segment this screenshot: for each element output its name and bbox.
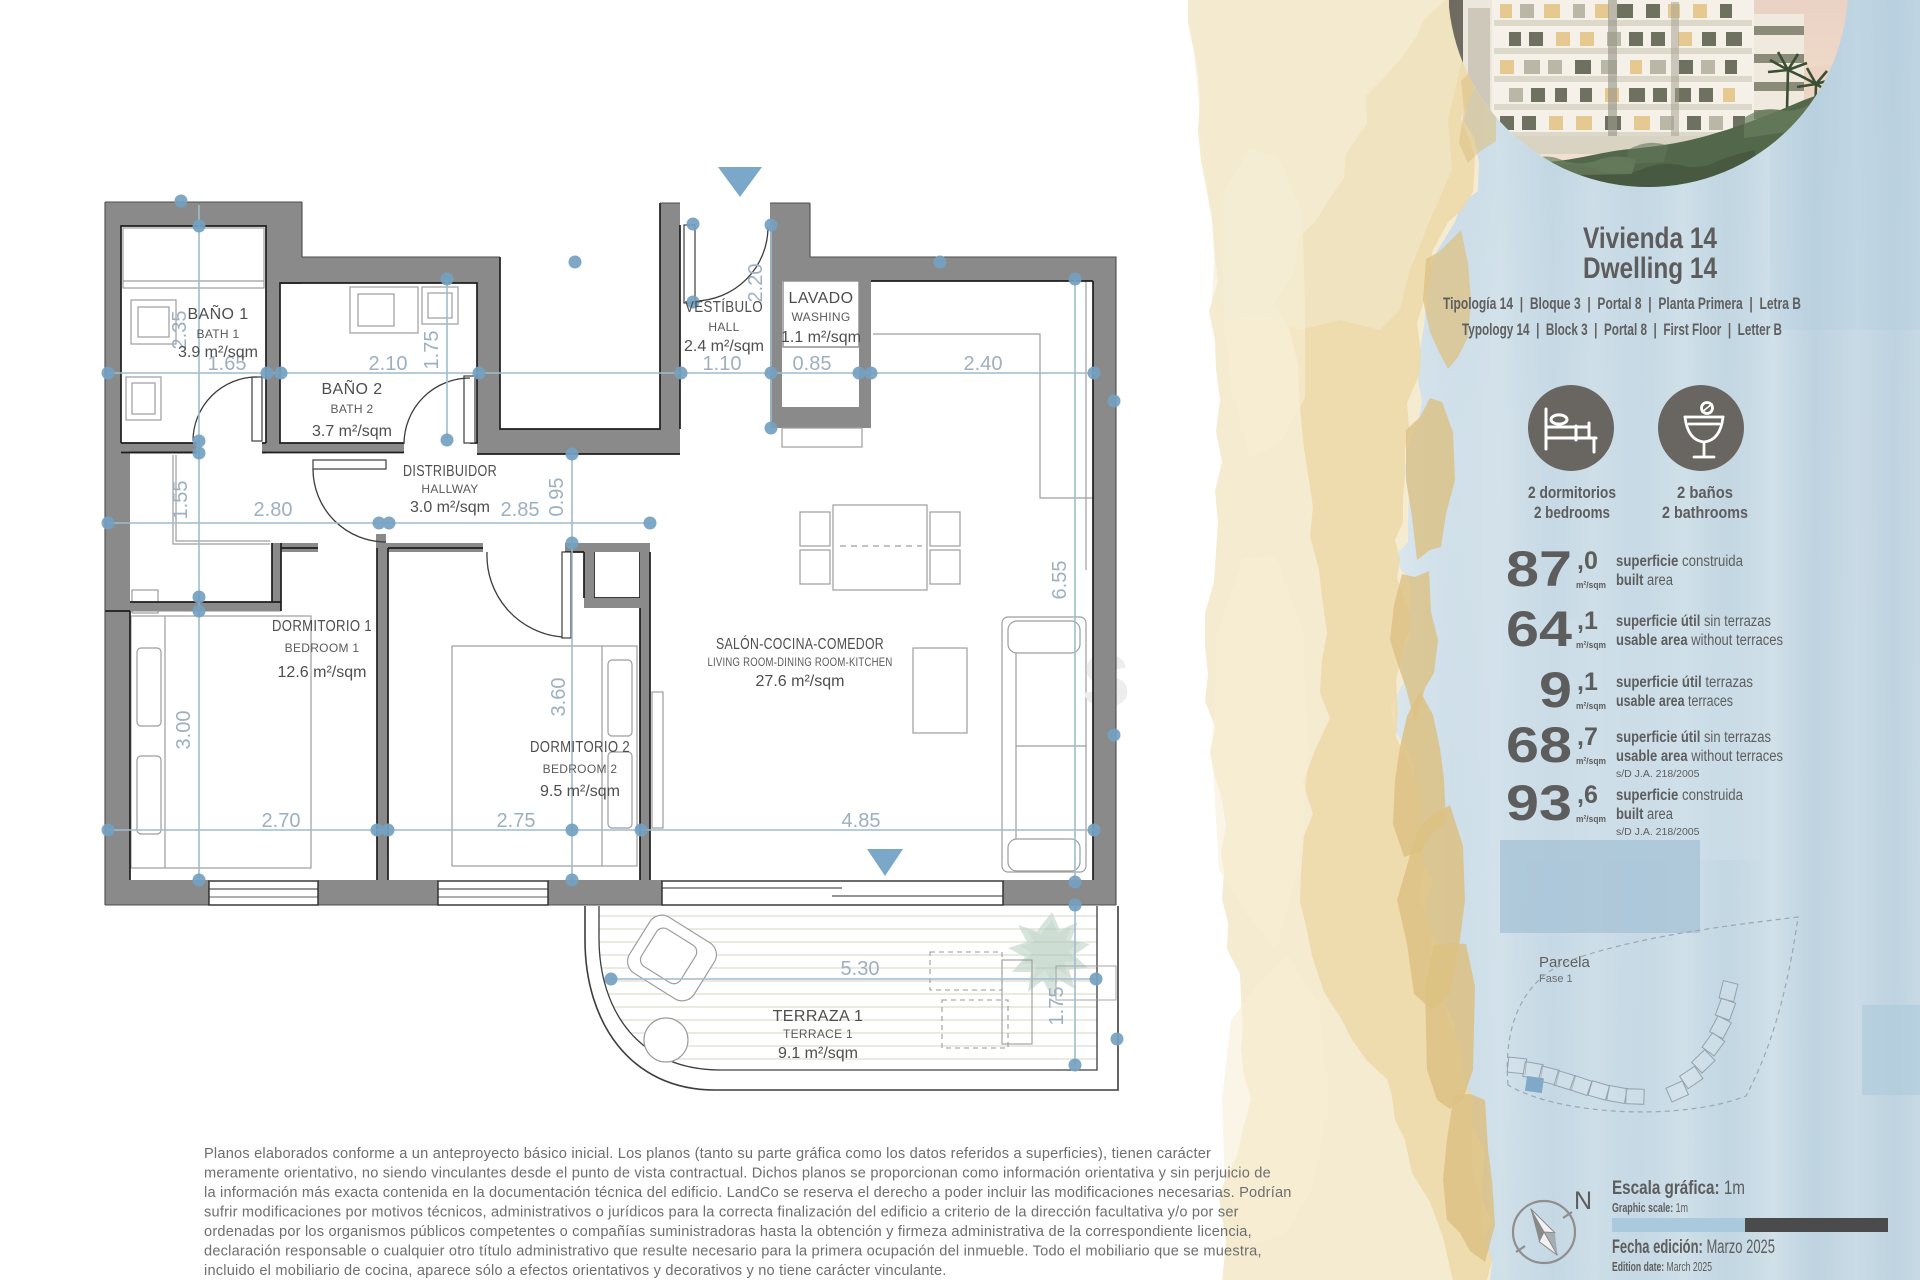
svg-text:LAVADO: LAVADO — [789, 290, 854, 307]
svg-text:27.6 m²/sqm: 27.6 m²/sqm — [756, 673, 845, 690]
svg-text:0.85: 0.85 — [793, 353, 832, 375]
svg-text:TERRACE 1: TERRACE 1 — [783, 1027, 853, 1041]
svg-text:Dwelling 14: Dwelling 14 — [1583, 252, 1717, 285]
svg-text:superficie útil terrazas: superficie útil terrazas — [1616, 674, 1753, 691]
svg-text:Planos elaborados conforme a u: Planos elaborados conforme a un anteproy… — [204, 1146, 1211, 1162]
svg-text:6.55: 6.55 — [1049, 561, 1071, 600]
svg-text:BAÑO 1: BAÑO 1 — [187, 303, 248, 323]
svg-text:BEDROOM 1: BEDROOM 1 — [285, 641, 360, 655]
svg-text:built area: built area — [1616, 806, 1673, 823]
svg-text:4.85: 4.85 — [842, 810, 881, 832]
svg-text:VESTÍBULO: VESTÍBULO — [685, 297, 763, 316]
svg-text:2 dormitorios: 2 dormitorios — [1528, 484, 1616, 502]
svg-text:superficie útil sin terrazas: superficie útil sin terrazas — [1616, 729, 1771, 746]
svg-text:BATH 2: BATH 2 — [331, 402, 374, 416]
svg-text:,1: ,1 — [1577, 668, 1598, 696]
svg-text:Vivienda 14: Vivienda 14 — [1583, 222, 1717, 255]
svg-text:BAÑO 2: BAÑO 2 — [321, 378, 382, 398]
svg-text:2.80: 2.80 — [254, 499, 293, 521]
svg-text:5.30: 5.30 — [841, 958, 880, 980]
svg-text:BEDROOM 2: BEDROOM 2 — [543, 762, 618, 776]
svg-text:2.75: 2.75 — [497, 810, 536, 832]
svg-text:2.20: 2.20 — [745, 264, 767, 303]
svg-text:1.75: 1.75 — [1046, 987, 1068, 1026]
svg-text:2.40: 2.40 — [964, 353, 1003, 375]
svg-text:superficie construida: superficie construida — [1616, 787, 1743, 804]
svg-text:m²/sqm: m²/sqm — [1576, 756, 1606, 767]
svg-text:meramente orientativo, no sien: meramente orientativo, no siendo vincula… — [204, 1166, 1271, 1182]
svg-text:,7: ,7 — [1577, 723, 1598, 751]
svg-text:9.5 m²/sqm: 9.5 m²/sqm — [540, 783, 620, 800]
svg-text:usable area without terraces: usable area without terraces — [1616, 748, 1783, 765]
svg-text:DISTRIBUIDOR: DISTRIBUIDOR — [403, 463, 497, 480]
svg-text:usable area without terraces: usable area without terraces — [1616, 632, 1783, 649]
svg-text:DORMITORIO 1: DORMITORIO 1 — [272, 618, 372, 635]
svg-text:2.70: 2.70 — [262, 810, 301, 832]
svg-text:incluido el mobiliario de coci: incluido el mobiliario de cocina, aparec… — [204, 1263, 947, 1279]
svg-text:,6: ,6 — [1577, 781, 1598, 809]
svg-text:3.9 m²/sqm: 3.9 m²/sqm — [178, 344, 258, 361]
svg-text:m²/sqm: m²/sqm — [1576, 814, 1606, 825]
svg-text:Fecha edición: Marzo 2025: Fecha edición: Marzo 2025 — [1612, 1237, 1775, 1258]
svg-text:Fase 1: Fase 1 — [1539, 973, 1573, 985]
svg-text:2.85: 2.85 — [501, 499, 540, 521]
svg-text:BATH 1: BATH 1 — [197, 327, 240, 341]
svg-text:9.1 m²/sqm: 9.1 m²/sqm — [778, 1045, 858, 1062]
svg-text:64: 64 — [1506, 601, 1572, 657]
svg-text:DORMITORIO 2: DORMITORIO 2 — [530, 739, 630, 756]
svg-text:3.0 m²/sqm: 3.0 m²/sqm — [410, 499, 490, 516]
svg-text:LIVING ROOM-DINING ROOM-KITCHE: LIVING ROOM-DINING ROOM-KITCHEN — [708, 655, 893, 669]
svg-text:Graphic scale: 1m: Graphic scale: 1m — [1612, 1200, 1688, 1215]
svg-text:declaración responsable o cual: declaración responsable o cualquier otro… — [204, 1244, 1262, 1260]
svg-text:,1: ,1 — [1577, 607, 1598, 635]
svg-text:TERRAZA 1: TERRAZA 1 — [773, 1008, 864, 1025]
svg-text:1.10: 1.10 — [703, 353, 742, 375]
svg-text:usable area terraces: usable area terraces — [1616, 693, 1733, 710]
svg-text:HALLWAY: HALLWAY — [421, 482, 478, 496]
svg-text:2.4 m²/sqm: 2.4 m²/sqm — [684, 338, 764, 355]
svg-text:superficie útil sin terrazas: superficie útil sin terrazas — [1616, 613, 1771, 630]
svg-text:2 bathrooms: 2 bathrooms — [1662, 504, 1748, 522]
svg-text:1.75: 1.75 — [421, 331, 443, 370]
svg-text:12.6 m²/sqm: 12.6 m²/sqm — [278, 664, 367, 681]
svg-text:s/D J.A. 218/2005: s/D J.A. 218/2005 — [1616, 826, 1700, 838]
svg-text:3.00: 3.00 — [173, 711, 195, 750]
svg-text:HALL: HALL — [708, 320, 739, 334]
svg-text:93: 93 — [1506, 775, 1572, 831]
svg-text:Typology 14 | Block 3 | Po: Typology 14 | Block 3 | Portal 8 | First… — [1462, 320, 1782, 339]
svg-text:1.55: 1.55 — [170, 481, 192, 520]
svg-text:0.95: 0.95 — [546, 478, 568, 517]
svg-text:1.1 m²/sqm: 1.1 m²/sqm — [781, 329, 861, 346]
svg-text:2.10: 2.10 — [369, 353, 408, 375]
svg-text:m²/sqm: m²/sqm — [1576, 580, 1606, 591]
svg-text:s/D J.A. 218/2005: s/D J.A. 218/2005 — [1616, 768, 1700, 780]
svg-text:ordenadas por los organismos p: ordenadas por los organismos públicos co… — [204, 1224, 1252, 1240]
svg-text:3.60: 3.60 — [548, 678, 570, 717]
svg-text:Edition date: March 2025: Edition date: March 2025 — [1612, 1259, 1712, 1274]
svg-text:built area: built area — [1616, 572, 1673, 589]
svg-text:9: 9 — [1539, 662, 1572, 718]
svg-text:sufrir modificaciones por moti: sufrir modificaciones por motivos técnic… — [204, 1205, 1239, 1221]
svg-text:2 baños: 2 baños — [1677, 484, 1733, 502]
svg-text:m²/sqm: m²/sqm — [1576, 701, 1606, 712]
svg-text:m²/sqm: m²/sqm — [1576, 640, 1606, 651]
svg-text:N: N — [1574, 1187, 1592, 1215]
svg-text:la información más exacta cont: la información más exacta contenida en l… — [204, 1185, 1292, 1201]
svg-text:Tipología 14 | Bloque 3 |: Tipología 14 | Bloque 3 | Portal 8 | Pla… — [1443, 294, 1801, 313]
svg-text:87: 87 — [1506, 541, 1572, 597]
svg-text:68: 68 — [1506, 717, 1572, 773]
svg-text:,0: ,0 — [1577, 547, 1598, 575]
svg-text:Escala gráfica: 1m: Escala gráfica: 1m — [1612, 1178, 1745, 1199]
svg-text:SALÓN-COCINA-COMEDOR: SALÓN-COCINA-COMEDOR — [716, 634, 884, 653]
svg-text:superficie construida: superficie construida — [1616, 553, 1743, 570]
svg-text:3.7 m²/sqm: 3.7 m²/sqm — [312, 423, 392, 440]
svg-text:WASHING: WASHING — [792, 310, 851, 324]
svg-text:2 bedrooms: 2 bedrooms — [1534, 504, 1610, 522]
